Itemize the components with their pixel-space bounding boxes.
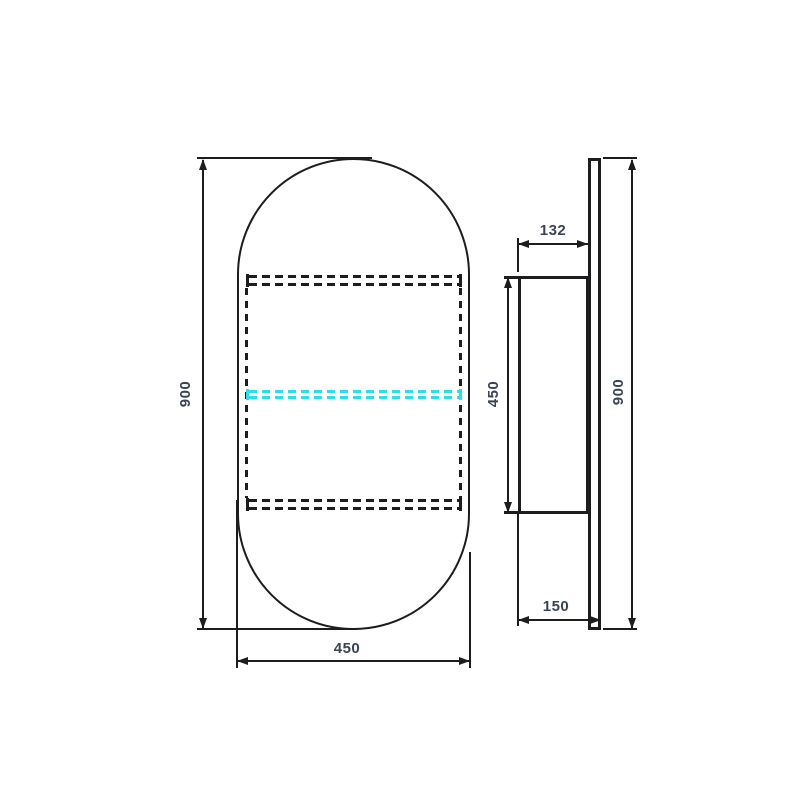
side-height900-dim-line xyxy=(631,160,633,628)
shelf-left-cap xyxy=(246,389,249,400)
side-height900-arrow-bottom xyxy=(628,618,636,629)
technical-drawing-canvas: 900 450 132 450 150 xyxy=(0,0,800,800)
side-total-depth-label: 150 xyxy=(534,598,578,616)
front-width-arrow-right xyxy=(459,657,470,665)
shelf-highlight-upper-line xyxy=(249,390,459,393)
front-height-arrow-bottom xyxy=(199,618,207,629)
front-width-ext-left xyxy=(236,500,238,668)
mirror-outline-front xyxy=(237,158,470,630)
side-depth150-dim-line xyxy=(518,619,601,621)
cabinet-dashed-top-outer xyxy=(249,275,459,278)
side-depth132-arrow-right xyxy=(577,240,588,248)
side-overall-height-label: 900 xyxy=(610,370,628,414)
front-width-arrow-left xyxy=(237,657,248,665)
cabinet-bottom-left-cap xyxy=(246,498,249,511)
side-depth150-ext xyxy=(517,514,519,626)
front-height-label: 900 xyxy=(177,372,195,416)
front-width-ext-right xyxy=(469,552,471,668)
side-height900-arrow-top xyxy=(628,159,636,170)
cabinet-top-right-cap xyxy=(459,274,462,287)
side-depth150-arrow-left xyxy=(518,616,529,624)
front-height-dim-line xyxy=(202,160,204,628)
front-height-arrow-top xyxy=(199,159,207,170)
side-depth150-arrow-right xyxy=(590,616,601,624)
cabinet-dashed-bottom-inner xyxy=(249,507,459,510)
mirror-panel-side xyxy=(588,158,601,630)
side-depth132-arrow-left xyxy=(518,240,529,248)
side-height450-arrow-bottom xyxy=(504,502,512,513)
cabinet-top-left-cap xyxy=(246,274,249,287)
front-width-dim-line xyxy=(237,660,470,662)
cabinet-dashed-bottom-outer xyxy=(249,499,459,502)
side-cabinet-height-label: 450 xyxy=(485,372,503,416)
shelf-right-cap xyxy=(459,389,462,400)
front-width-label: 450 xyxy=(325,640,369,658)
side-cabinet-depth-label: 132 xyxy=(531,222,575,240)
front-height-ext-bottom xyxy=(197,628,357,630)
cabinet-bottom-right-cap xyxy=(459,498,462,511)
side-height450-dim-line xyxy=(507,277,509,513)
cabinet-dashed-top-inner xyxy=(249,283,459,286)
front-height-ext-top xyxy=(197,157,372,159)
cabinet-box-side xyxy=(518,276,589,514)
shelf-highlight-lower-line xyxy=(249,396,459,399)
side-height450-arrow-top xyxy=(504,277,512,288)
